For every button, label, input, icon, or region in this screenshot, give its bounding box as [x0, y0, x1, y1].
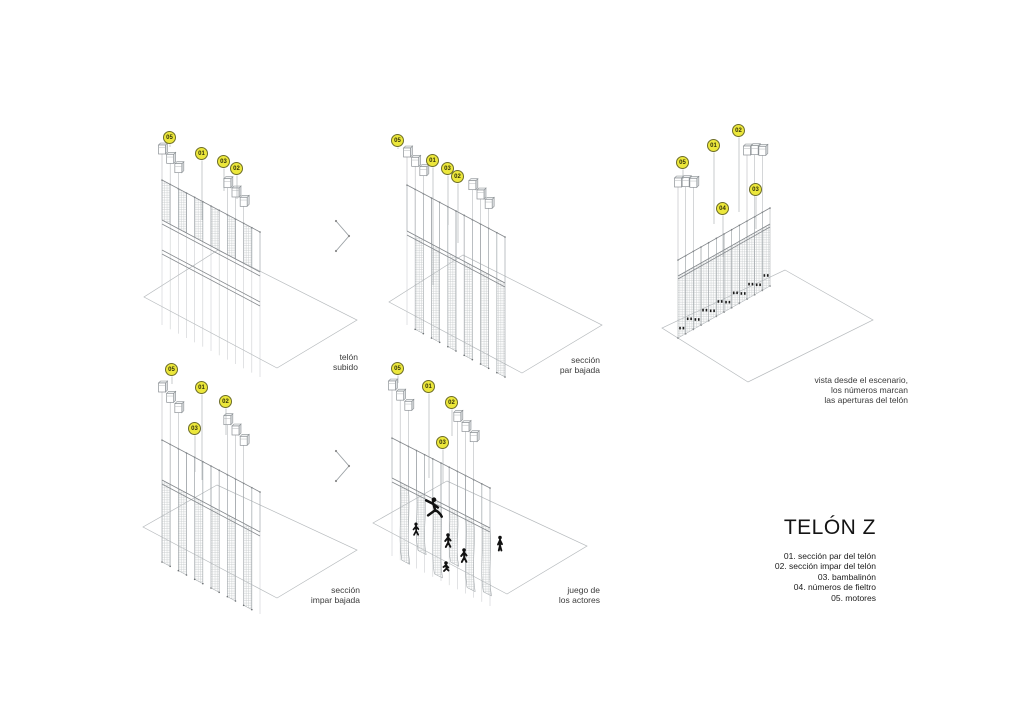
callout-badge-motores: 05	[165, 363, 178, 376]
flow-chevron-right-icon	[334, 449, 354, 485]
diagram-caption: sección par bajada	[560, 355, 600, 375]
motor-boxes	[159, 381, 250, 483]
callout-badge-motores: 05	[676, 156, 689, 169]
legend: 01. sección par del telón 02. sección im…	[775, 551, 876, 603]
callout-badge-seccion-par: 01	[426, 154, 439, 167]
motor-boxes	[389, 379, 480, 480]
drawing-title: TELÓN Z	[775, 516, 876, 540]
diagram-caption: vista desde el escenario, los números ma…	[814, 375, 908, 405]
diagram-caption: sección impar bajada	[311, 585, 360, 605]
callout-badge-seccion-impar: 02	[219, 395, 232, 408]
axonometric-drawing-vista-escenario	[648, 112, 916, 412]
callout-badge-bambalinon: 03	[188, 422, 201, 435]
legend-item-03: 03. bambalinón	[775, 572, 876, 582]
legend-item-05: 05. motores	[775, 593, 876, 603]
axonometric-drawing-juego-actores	[370, 358, 620, 613]
legend-item-04: 04. números de fieltro	[775, 582, 876, 592]
flow-chevron-right-icon	[334, 219, 354, 255]
callout-badge-bambalinon: 03	[436, 436, 449, 449]
legend-item-01: 01. sección par del telón	[775, 551, 876, 561]
diagram-vista-escenario: 05 01 02 04 03 vista desde el escenario,…	[648, 112, 916, 412]
diagram-juego-actores: 05 01 02 03 juego de los actores	[370, 358, 620, 613]
callout-badge-seccion-impar: 02	[732, 124, 745, 137]
motor-boxes	[404, 146, 495, 228]
diagram-seccion-impar-bajada: 05 01 02 03 sección impar bajada	[140, 360, 375, 615]
callout-badge-seccion-par: 01	[707, 139, 720, 152]
callout-badge-seccion-par: 01	[195, 147, 208, 160]
title-block: TELÓN Z 01. sección par del telón 02. se…	[775, 516, 876, 603]
diagram-caption: telón subido	[333, 352, 358, 372]
callout-badge-seccion-impar: 02	[230, 162, 243, 175]
stage-floor-outline	[144, 250, 357, 368]
callout-badge-motores: 05	[391, 134, 404, 147]
callout-badge-motores: 05	[391, 362, 404, 375]
diagram-seccion-par-bajada: 05 01 03 02 sección par bajada	[385, 125, 620, 380]
callout-badge-numeros-fieltro: 04	[716, 202, 729, 215]
axonometric-drawing-seccion-impar-bajada	[140, 360, 375, 615]
curtain-strips	[407, 185, 505, 377]
callout-badge-seccion-par: 01	[195, 381, 208, 394]
callout-badge-bambalinon: 03	[749, 183, 762, 196]
axonometric-drawing-seccion-par-bajada	[385, 125, 620, 380]
callout-badge-seccion-impar: 02	[451, 170, 464, 183]
callout-badge-seccion-impar: 02	[445, 396, 458, 409]
callout-badge-seccion-par: 01	[422, 380, 435, 393]
diagram-caption: juego de los actores	[559, 585, 600, 605]
legend-item-02: 02. sección impar del telón	[775, 561, 876, 571]
callout-badge-motores: 05	[163, 131, 176, 144]
actor-figure	[498, 536, 502, 551]
drawing-canvas: 05 01 03 02 telón subido 05 01 03 02 sec…	[0, 0, 1024, 724]
actor-figure	[444, 561, 449, 571]
callout-badge-bambalinon: 03	[217, 155, 230, 168]
